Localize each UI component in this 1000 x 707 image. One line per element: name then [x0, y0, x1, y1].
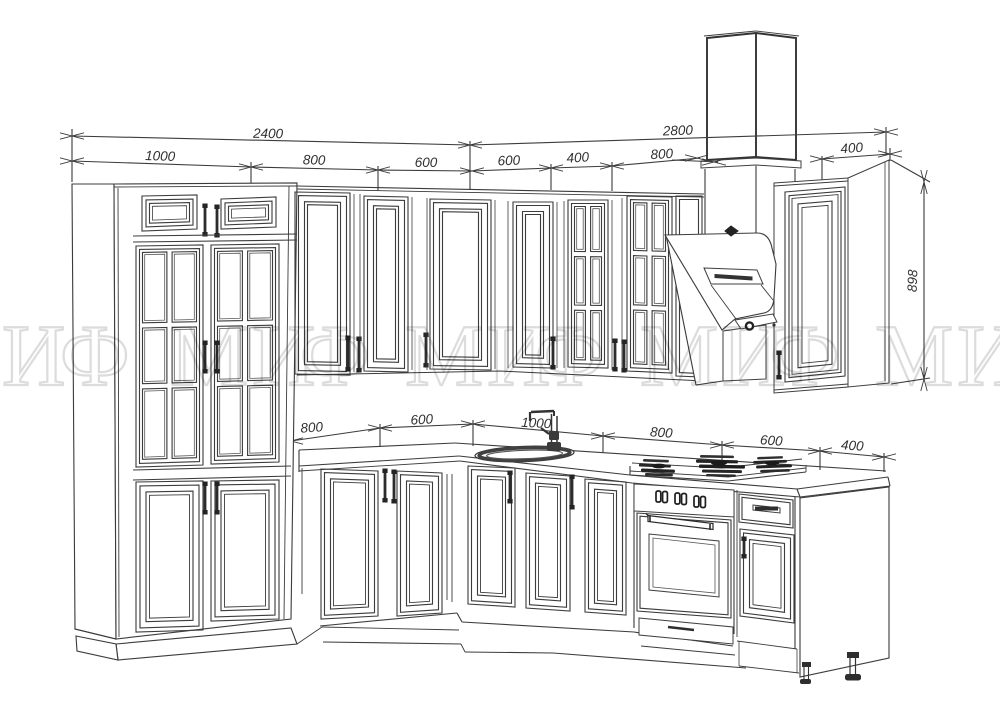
svg-text:И: И — [957, 308, 1000, 405]
svg-text:400: 400 — [840, 140, 864, 157]
svg-text:М: М — [640, 308, 718, 405]
svg-text:Ф: Ф — [535, 308, 605, 405]
svg-text:2400: 2400 — [252, 126, 284, 142]
svg-text:1000: 1000 — [521, 415, 552, 432]
svg-text:600: 600 — [760, 432, 784, 449]
svg-text:800: 800 — [650, 146, 674, 162]
svg-text:М: М — [875, 308, 953, 405]
svg-text:400: 400 — [841, 437, 865, 454]
svg-text:800: 800 — [300, 419, 324, 436]
svg-text:898: 898 — [905, 269, 921, 293]
svg-text:1000: 1000 — [145, 148, 176, 164]
svg-text:М: М — [170, 308, 248, 405]
svg-text:Ф: Ф — [60, 308, 130, 405]
svg-text:600: 600 — [497, 153, 521, 169]
svg-text:600: 600 — [415, 155, 438, 170]
svg-text:И: И — [2, 308, 66, 405]
svg-text:Ф: Ф — [300, 308, 370, 405]
svg-text:Ф: Ф — [770, 308, 840, 405]
svg-text:800: 800 — [650, 424, 674, 441]
svg-text:2800: 2800 — [662, 122, 694, 138]
svg-text:М: М — [405, 308, 483, 405]
svg-text:400: 400 — [566, 149, 590, 165]
svg-text:600: 600 — [410, 411, 434, 427]
svg-text:800: 800 — [303, 152, 326, 167]
